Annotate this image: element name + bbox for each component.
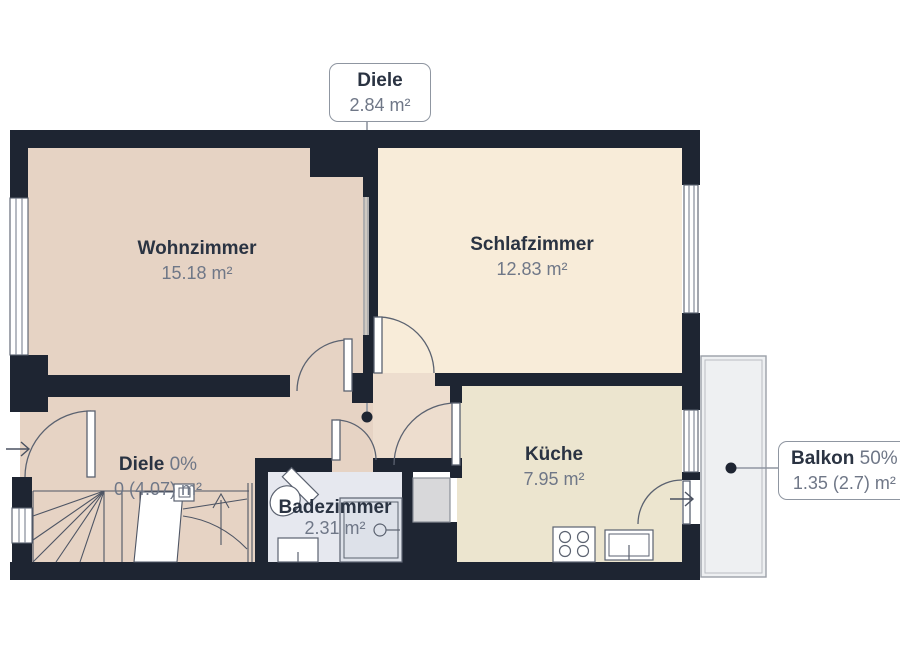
callout-area: 1.35 (2.7) m² — [791, 471, 898, 495]
wall-top — [10, 130, 700, 148]
window-left-small — [12, 508, 32, 543]
wall-bad-left — [255, 458, 268, 562]
bath-sink-icon — [278, 538, 318, 562]
wall-hall-chunk — [352, 373, 373, 403]
duct-box — [174, 484, 194, 501]
wall-right-top — [682, 148, 700, 185]
callout-area: 2.84 m² — [342, 93, 418, 117]
wall-bad-kueche-block — [402, 522, 457, 562]
wall-chimney — [310, 148, 378, 177]
wall-kueche-left-a — [450, 386, 462, 403]
wall-bottom — [10, 562, 700, 580]
hall-floor-right[interactable] — [373, 373, 462, 472]
balkon-anchor-dot — [726, 463, 737, 474]
callout-share: 50% — [860, 448, 898, 469]
diele-top-callout[interactable]: Diele 2.84 m² — [329, 63, 431, 122]
window-left-large — [10, 198, 28, 355]
schlafzimmer-floor[interactable] — [378, 148, 682, 373]
wall-left-low2 — [12, 543, 32, 562]
wall-left-low1 — [12, 477, 32, 508]
diele-anchor-dot — [362, 412, 373, 423]
kitchen-sink-icon — [605, 530, 653, 560]
callout-room: Balkon — [791, 448, 854, 469]
callout-room: Diele — [342, 68, 418, 93]
balkon-callout[interactable]: Balkon 50% 1.35 (2.7) m² — [778, 441, 900, 500]
window-kueche — [684, 410, 698, 472]
wall-right-mid — [682, 313, 700, 410]
wall-bad-top-b — [373, 458, 450, 472]
wall-wohn-bottom — [10, 375, 290, 397]
wall-right-low2 — [682, 524, 700, 562]
fridge-icon — [413, 478, 450, 522]
shower-icon — [340, 498, 402, 562]
wall-inset — [363, 197, 369, 335]
window-schlafzimmer — [684, 185, 698, 313]
wall-schlaf-bottom — [435, 373, 700, 386]
stove-icon — [553, 527, 595, 562]
floorplan-page: Wohnzimmer 15.18 m² Schlafzimmer 12.83 m… — [0, 0, 900, 647]
floor-plan — [0, 0, 900, 647]
wohnzimmer-floor[interactable] — [28, 148, 363, 375]
wall-left-top — [10, 148, 28, 198]
wall-right-low1 — [682, 472, 700, 480]
